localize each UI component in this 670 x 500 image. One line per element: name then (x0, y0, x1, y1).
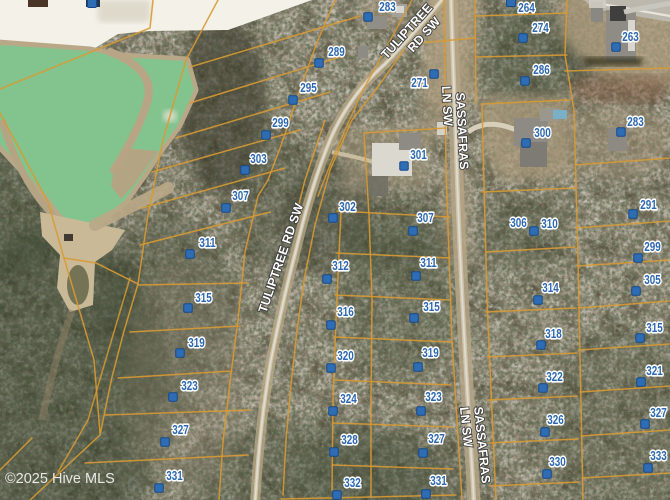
svg-text:299: 299 (644, 240, 661, 254)
svg-text:322: 322 (546, 370, 563, 384)
svg-text:333: 333 (650, 449, 667, 463)
svg-text:326: 326 (547, 413, 564, 427)
svg-text:316: 316 (337, 305, 354, 319)
svg-text:310: 310 (541, 217, 558, 231)
svg-text:289: 289 (328, 45, 345, 59)
svg-text:315: 315 (646, 321, 663, 335)
svg-text:327: 327 (428, 432, 445, 446)
svg-text:263: 263 (622, 30, 639, 44)
svg-text:299: 299 (272, 116, 289, 130)
svg-text:319: 319 (188, 336, 205, 350)
svg-text:319: 319 (422, 346, 439, 360)
svg-text:324: 324 (340, 392, 357, 406)
svg-text:311: 311 (199, 236, 216, 250)
svg-text:283: 283 (627, 115, 644, 129)
svg-text:©2025 Hive MLS: ©2025 Hive MLS (5, 471, 115, 487)
svg-text:295: 295 (300, 81, 317, 95)
svg-text:327: 327 (650, 406, 667, 420)
svg-text:286: 286 (533, 63, 550, 77)
svg-text:291: 291 (640, 198, 657, 212)
svg-text:300: 300 (534, 126, 551, 140)
svg-text:307: 307 (232, 189, 249, 203)
svg-text:328: 328 (341, 433, 358, 447)
svg-text:323: 323 (181, 379, 198, 393)
svg-text:314: 314 (542, 281, 559, 295)
svg-text:305: 305 (644, 273, 661, 287)
svg-text:302: 302 (339, 200, 356, 214)
svg-text:LN SW: LN SW (439, 86, 455, 127)
svg-text:331: 331 (430, 474, 447, 488)
svg-text:311: 311 (420, 256, 437, 270)
svg-text:264: 264 (518, 1, 535, 15)
svg-text:303: 303 (250, 152, 267, 166)
svg-text:323: 323 (425, 390, 442, 404)
svg-text:331: 331 (166, 469, 183, 483)
svg-text:307: 307 (417, 211, 434, 225)
svg-text:332: 332 (344, 476, 361, 490)
svg-text:306: 306 (510, 216, 527, 230)
svg-text:321: 321 (646, 364, 663, 378)
svg-text:271: 271 (411, 76, 428, 90)
svg-text:330: 330 (549, 455, 566, 469)
svg-text:312: 312 (332, 259, 349, 273)
svg-text:327: 327 (172, 423, 189, 437)
svg-text:283: 283 (379, 0, 396, 14)
svg-text:315: 315 (195, 291, 212, 305)
svg-text:318: 318 (545, 327, 562, 341)
svg-text:301: 301 (410, 148, 427, 162)
svg-text:315: 315 (423, 300, 440, 314)
svg-text:320: 320 (337, 349, 354, 363)
svg-text:274: 274 (532, 21, 549, 35)
